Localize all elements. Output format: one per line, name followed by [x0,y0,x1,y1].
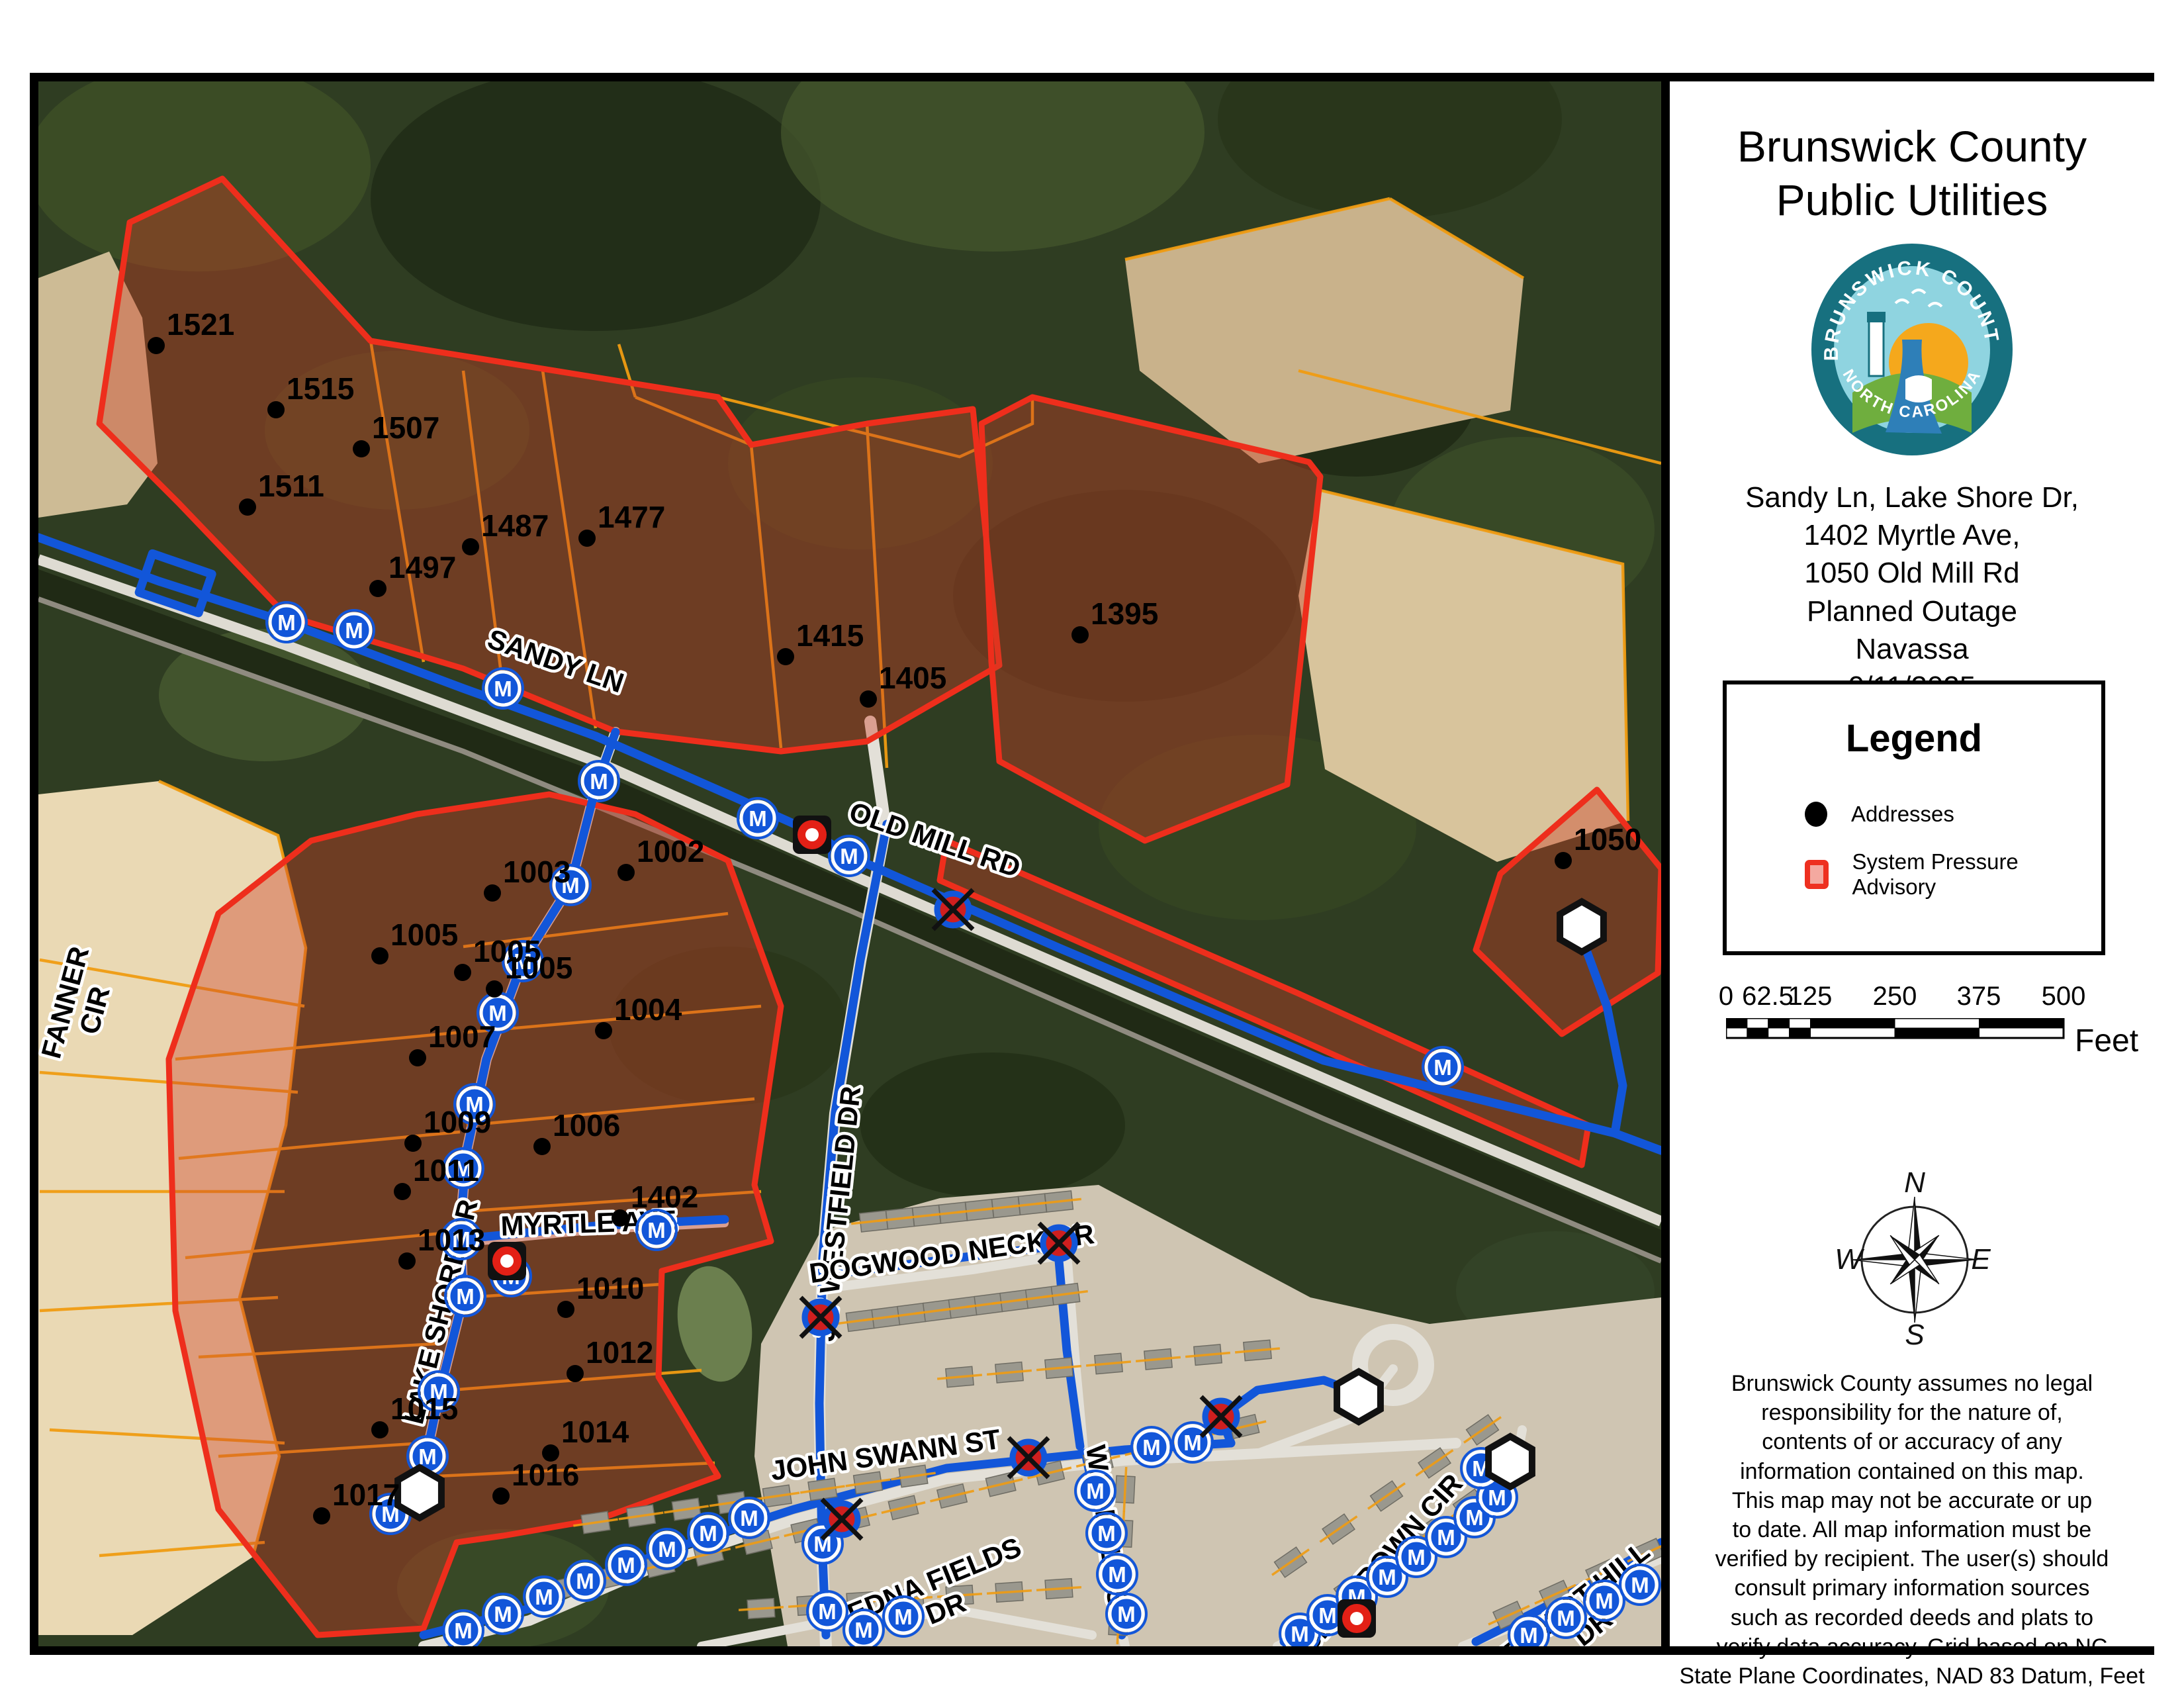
map-title: Brunswick County Public Utilities [1670,120,2154,226]
disclaimer-line: Brunswick County assumes no legal [1670,1369,2154,1398]
address-label: 1014 [561,1415,629,1449]
scale-label-375: 375 [1957,982,2001,1011]
address-label: 1487 [481,508,549,543]
svg-text:M: M [456,1284,475,1309]
svg-text:M: M [894,1605,913,1629]
water-meter-icon: M [579,761,619,801]
scale-label-125: 125 [1788,982,1833,1011]
address-label: 1013 [418,1223,485,1257]
address-dot [239,498,256,516]
disclaimer-line: to date. All map information must be [1670,1515,2154,1544]
address-label: 1004 [614,992,682,1027]
address-label: 1007 [428,1019,496,1054]
address-dot [1071,626,1089,643]
svg-text:M: M [1488,1485,1506,1510]
svg-text:M: M [1117,1602,1136,1626]
scale-label-250: 250 [1873,982,1917,1011]
flush-hydrant-icon [1560,902,1604,952]
address-dot [353,440,370,457]
scale-label-62: 62.5 [1742,982,1794,1011]
svg-text:M: M [277,610,296,635]
svg-text:M: M [454,1618,473,1643]
address-label: 1005 [390,917,458,952]
svg-text:M: M [1407,1545,1426,1570]
flush-hydrant-icon [1337,1372,1381,1422]
address-dot [409,1049,426,1066]
svg-text:M: M [749,806,767,831]
address-label: 1017 [332,1477,400,1512]
address-dot [454,964,471,981]
disclaimer-line: responsibility for the nature of, [1670,1398,2154,1427]
legend-item: Addresses [1805,802,2101,827]
address-label: 1521 [167,307,234,342]
water-meter-icon: M [829,836,869,876]
svg-text:M: M [647,1218,666,1243]
address-label: 1511 [258,469,324,503]
address-dot [369,580,387,597]
svg-text:M: M [345,618,363,643]
svg-text:S: S [1905,1319,1924,1351]
address-dot [371,1421,388,1438]
water-meter-icon: M [1620,1565,1660,1605]
svg-text:M: M [576,1569,594,1593]
svg-text:M: M [494,1602,512,1626]
address-dot [533,1138,551,1155]
disclaimer-line: verify data accuracy. Grid based on NC [1670,1632,2154,1662]
svg-text:M: M [590,769,608,794]
water-meter-icon: M [483,1594,523,1634]
water-meter-icon: M [807,1591,847,1631]
water-meter-icon: M [1075,1471,1115,1511]
svg-text:M: M [1142,1435,1161,1460]
address-label: 1497 [388,550,456,585]
closed-valve-icon [933,890,973,929]
address-dot [557,1301,574,1318]
water-meter-icon: M [1546,1598,1586,1638]
water-meter-icon: M [1132,1427,1171,1467]
flush-hydrant-icon [1488,1436,1532,1487]
outage-info-line: Navassa [1670,630,2154,668]
water-meter-icon: M [647,1529,687,1569]
address-label: 1009 [424,1105,491,1139]
hydrant-icon [793,816,831,854]
scale-label-500: 500 [2042,982,2086,1011]
map-canvas: SANDY LNOLD MILL RDMYRTLE AVELAKE SHORE … [38,81,1661,1646]
svg-text:M: M [1557,1606,1575,1630]
hydrant-icon [488,1242,526,1280]
svg-text:M: M [1183,1430,1202,1455]
address-dot [486,980,503,998]
disclaimer-line: This map may not be accurate or up [1670,1486,2154,1515]
water-meter-icon: M [1423,1047,1463,1087]
water-meter-icon: M [1107,1594,1146,1634]
water-meter-icon: M [729,1498,769,1538]
outage-info-line: 1050 Old Mill Rd [1670,554,2154,592]
address-label: 1011 [413,1153,479,1188]
flush-hydrant-icon [398,1468,441,1518]
water-meter-icon: M [483,669,523,708]
water-meter-icon: M [1509,1615,1549,1646]
address-label: 1010 [576,1271,644,1305]
address-dot [148,337,165,354]
address-label: 1005 [505,951,572,985]
svg-text:M: M [617,1553,635,1577]
address-dot [777,648,794,665]
water-meter-icon: M [844,1610,884,1646]
legend-item-label: Addresses [1851,802,1954,827]
svg-text:M: M [740,1506,758,1530]
address-dot [860,690,877,708]
water-meter-icon: M [565,1561,605,1601]
water-meter-icon: M [1097,1554,1137,1594]
address-dot [1555,852,1572,869]
disclaimer-line: State Plane Coordinates, NAD 83 Datum, F… [1670,1662,2154,1688]
svg-text:M: M [1318,1603,1337,1628]
water-meter-icon: M [445,1276,485,1316]
info-panel: Brunswick County Public Utilities BRUNSW… [1670,81,2154,1646]
address-label: 1050 [1574,822,1641,857]
svg-text:M: M [658,1537,676,1562]
address-label: 1415 [796,618,864,653]
address-label: 1405 [879,661,946,695]
legend: Legend AddressesSystem Pressure Advisory [1723,680,2105,955]
address-dot [371,947,388,964]
svg-text:M: M [840,844,858,868]
svg-text:M: M [1631,1573,1649,1597]
svg-text:M: M [1291,1622,1309,1646]
svg-text:M: M [699,1521,717,1546]
address-dot [617,864,635,881]
address-dot [313,1507,330,1524]
closed-valve-icon [1039,1223,1079,1263]
water-meter-icon: M [443,1611,483,1646]
outage-info-line: 1402 Myrtle Ave, [1670,516,2154,554]
address-dot [404,1135,422,1152]
addresses-dot-icon [1805,802,1827,827]
address-dot [462,538,479,555]
svg-text:M: M [1437,1525,1455,1550]
address-dot [567,1365,584,1382]
svg-text:M: M [1097,1521,1116,1546]
disclaimer-line: information contained on this map. [1670,1457,2154,1486]
svg-text:M: M [854,1618,873,1642]
scale-unit: Feet [2075,1023,2138,1059]
address-label: 1477 [598,500,665,534]
advisory-square-icon [1805,860,1829,889]
outage-info-line: Sandy Ln, Lake Shore Dr, [1670,479,2154,516]
water-meter-icon: M [637,1210,676,1250]
address-label: 1015 [390,1391,458,1426]
scale-label-0: 0 [1719,982,1733,1011]
county-logo: BRUNSWICK COUNTY NORTH CAROLINA [1806,240,2018,462]
outage-info-line: Planned Outage [1670,592,2154,630]
address-label: 1402 [631,1180,698,1214]
disclaimer-line: consult primary information sources [1670,1573,2154,1603]
address-label: 1012 [586,1335,653,1370]
scale-bar: 0 62.5 125 250 375 500 Feet [1670,982,2154,1074]
closed-valve-icon [822,1499,862,1539]
hydrant-icon [1338,1599,1376,1638]
water-meter-icon: M [688,1513,728,1553]
page: SANDY LNOLD MILL RDMYRTLE AVELAKE SHORE … [0,0,2184,1688]
address-label: 1515 [287,371,354,406]
svg-text:E: E [1971,1243,1991,1276]
disclaimer: Brunswick County assumes no legalrespons… [1670,1369,2154,1688]
water-meter-icon: M [738,798,778,838]
svg-text:N: N [1904,1167,1925,1199]
address-dot [267,401,285,418]
water-meter-icon: M [1087,1513,1126,1553]
address-label: 1002 [637,834,704,868]
svg-text:M: M [494,677,512,701]
svg-text:M: M [1108,1562,1126,1587]
svg-text:M: M [1520,1623,1538,1646]
legend-item-label: System Pressure Advisory [1852,849,2101,900]
panel-divider [1661,81,1670,1646]
address-dot [578,530,596,547]
svg-text:M: M [1378,1565,1396,1589]
water-meter-icon: M [524,1577,564,1617]
scale-bar-graphic [1726,1018,2083,1045]
water-meter-icon: M [606,1545,646,1585]
disclaimer-line: such as recorded deeds and plats to [1670,1603,2154,1632]
address-dot [484,884,501,902]
address-dot [394,1183,411,1200]
water-meter-icon: M [334,610,374,650]
address-label: 1003 [503,855,570,889]
svg-text:M: M [818,1599,837,1624]
disclaimer-line: contents of or accuracy of any [1670,1427,2154,1456]
disclaimer-line: verified by recipient. The user(s) shoul… [1670,1544,2154,1573]
closed-valve-icon [1201,1397,1241,1436]
address-dot [492,1487,510,1505]
legend-item: System Pressure Advisory [1805,849,2101,900]
address-label: 1507 [372,410,439,445]
water-meter-icon: M [267,602,306,642]
legend-title: Legend [1727,716,2101,761]
address-label: 1395 [1091,596,1158,631]
svg-text:W: W [1835,1243,1864,1276]
address-dot [398,1252,416,1270]
water-meter-icon: M [884,1597,923,1636]
compass-rose: N S E W [1829,1167,2001,1356]
closed-valve-icon [1009,1438,1048,1477]
address-label: 1006 [553,1108,620,1143]
svg-text:M: M [1433,1055,1452,1080]
address-label: 1016 [512,1458,579,1492]
utility-map: SANDY LNOLD MILL RDMYRTLE AVELAKE SHORE … [38,81,1661,1646]
svg-text:M: M [1086,1479,1105,1503]
address-dot [612,1209,629,1227]
svg-text:M: M [535,1585,553,1609]
closed-valve-icon [801,1297,841,1337]
svg-text:M: M [1595,1589,1614,1613]
water-meter-icon: M [1584,1581,1624,1620]
address-dot [595,1022,612,1039]
